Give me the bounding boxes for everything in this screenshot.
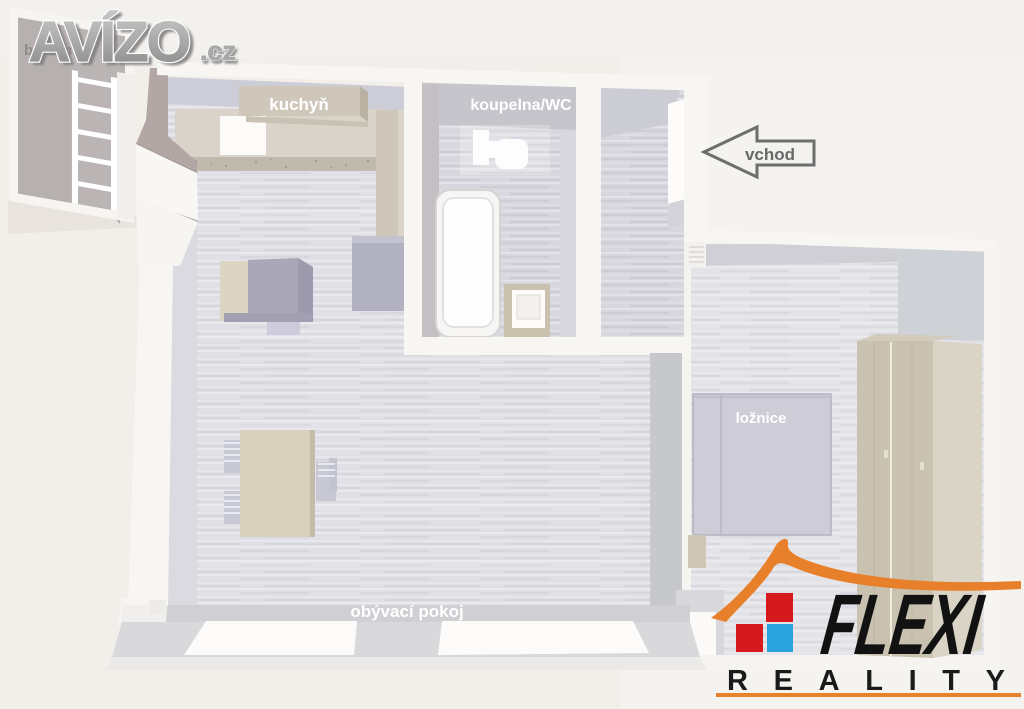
svg-text:koupelna/WC: koupelna/WC (470, 97, 572, 114)
svg-text:FLEXI: FLEXI (816, 577, 989, 673)
svg-text:vchod: vchod (745, 145, 795, 164)
svg-text:AVÍZO: AVÍZO (29, 10, 189, 74)
svg-text:obývací pokoj: obývací pokoj (350, 602, 463, 621)
svg-text:.cz: .cz (200, 36, 236, 66)
svg-text:ložnice: ložnice (736, 410, 787, 427)
svg-text:kuchyň: kuchyň (269, 95, 329, 114)
